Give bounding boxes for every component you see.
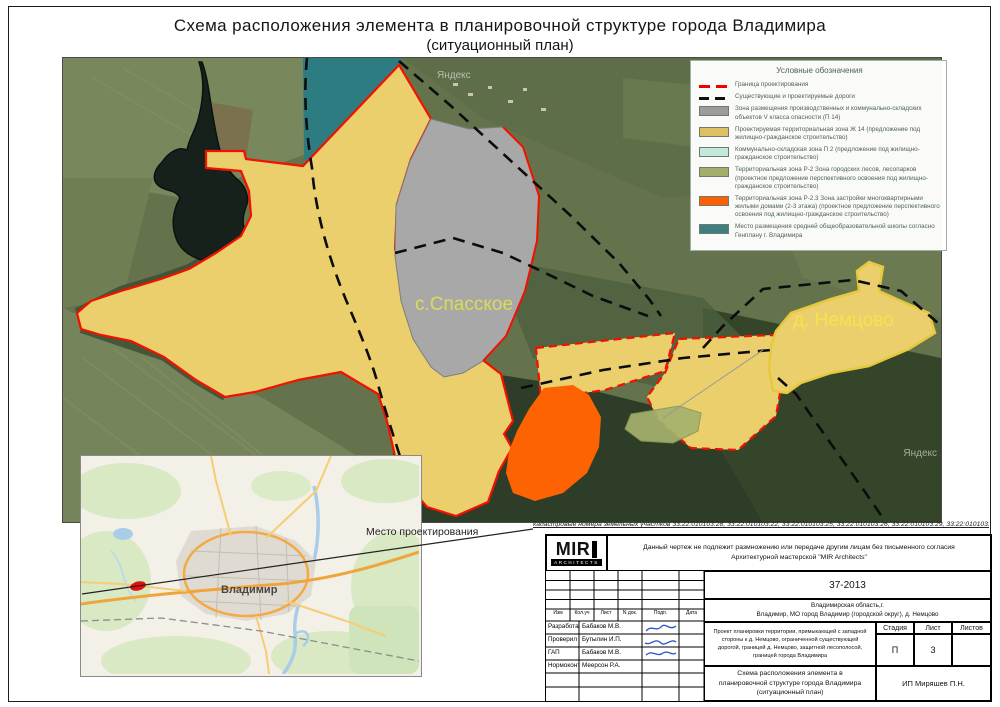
legend-title: Условные обозначения	[699, 66, 940, 75]
location-cell: Владимирская область,г. Владимир, МО гор…	[704, 599, 991, 622]
company-cell: ИП Миряшев П.Н.	[876, 666, 991, 701]
orange-zone-swatch	[699, 196, 729, 206]
legend-item: Территориальная зона Р-2.3 Зона застройк…	[699, 195, 940, 220]
role-label: ГАП	[548, 649, 579, 656]
drawing-sheet: Схема расположения элемента в планировоч…	[0, 0, 1000, 707]
role-label: Разработал	[548, 623, 579, 630]
col-data: Дата	[679, 610, 704, 616]
col-koluch: Кол.уч	[570, 610, 594, 616]
col-izm: Изм	[546, 610, 570, 616]
label-nemtsovo: д. Немцово	[793, 310, 894, 331]
col-podp: Подп.	[642, 610, 679, 616]
page-title: Схема расположения элемента в планировоч…	[0, 16, 1000, 36]
drawing-title-cell: Схема расположения элемента в планировоч…	[704, 666, 876, 701]
legend-item: Существующие и проектируемые дороги	[699, 93, 940, 101]
legend-item: Коммунально-складская зона П 2 (предложе…	[699, 146, 940, 162]
cyan-zone-swatch	[699, 147, 729, 157]
role-name: Бутылин И.П.	[582, 636, 641, 643]
logo-bar	[592, 541, 597, 558]
label-spasskoe: с.Спасское	[415, 294, 513, 315]
cadastral-note: кадастровые номера земельных участков 33…	[533, 521, 989, 528]
signature	[643, 635, 678, 647]
stage-value: П	[876, 634, 914, 666]
inset-map-canvas: Владимир	[81, 456, 419, 674]
logo-text: MIR	[556, 540, 591, 558]
role-name: Меерсон Р.А.	[582, 662, 641, 669]
title-block: MIR ARCHITECTS Данный чертеж не подлежит…	[545, 534, 992, 702]
signature	[643, 648, 678, 660]
watermark-top: Яндекс	[437, 70, 471, 81]
mir-logo: MIR ARCHITECTS	[546, 535, 607, 571]
logo-subtext: ARCHITECTS	[551, 559, 602, 566]
legend-item: Зона размещения производственных и комму…	[699, 105, 940, 121]
teal-zone-swatch	[699, 224, 729, 234]
inset-location-map: Владимир	[80, 455, 422, 677]
legend-item: Проектируемая территориальная зона Ж 14 …	[699, 126, 940, 142]
project-description: Проект планировки территории, примыкающе…	[704, 622, 876, 666]
inset-city-label: Владимир	[221, 584, 278, 596]
legend: Условные обозначения Граница проектирова…	[690, 60, 947, 251]
page-subtitle: (ситуационный план)	[0, 37, 1000, 54]
callout-label: Место проектирования	[366, 526, 478, 538]
gray-zone-swatch	[699, 106, 729, 116]
sheets-total-value	[952, 634, 991, 666]
sheets-total-header: Листов	[952, 622, 991, 634]
yellow-zone-swatch	[699, 127, 729, 137]
olive-zone-swatch	[699, 167, 729, 177]
legend-item: Место размещения средней общеобразовател…	[699, 223, 940, 239]
sheet-value: 3	[914, 634, 952, 666]
role-name: Бабаков М.В.	[582, 649, 641, 656]
boundary-line-swatch	[699, 85, 729, 88]
col-ndok: N док.	[618, 610, 642, 616]
legend-item: Граница проектирования	[699, 81, 940, 89]
role-name: Бабаков М.В.	[582, 623, 641, 630]
role-label: Нормоконтр	[548, 662, 579, 669]
sheet-header: Лист	[914, 622, 952, 634]
watermark-bottom: Яндекс	[903, 448, 937, 459]
stage-header: Стадия	[876, 622, 914, 634]
disclaimer: Данный чертеж не подлежит размножению ил…	[607, 535, 991, 571]
signature	[643, 622, 678, 634]
doc-number: 37-2013	[704, 571, 991, 599]
role-label: Проверил	[548, 636, 579, 643]
col-list: Лист	[594, 610, 618, 616]
legend-item: Территориальная зона Р-2 Зона городских …	[699, 166, 940, 191]
road-line-swatch	[699, 97, 729, 100]
